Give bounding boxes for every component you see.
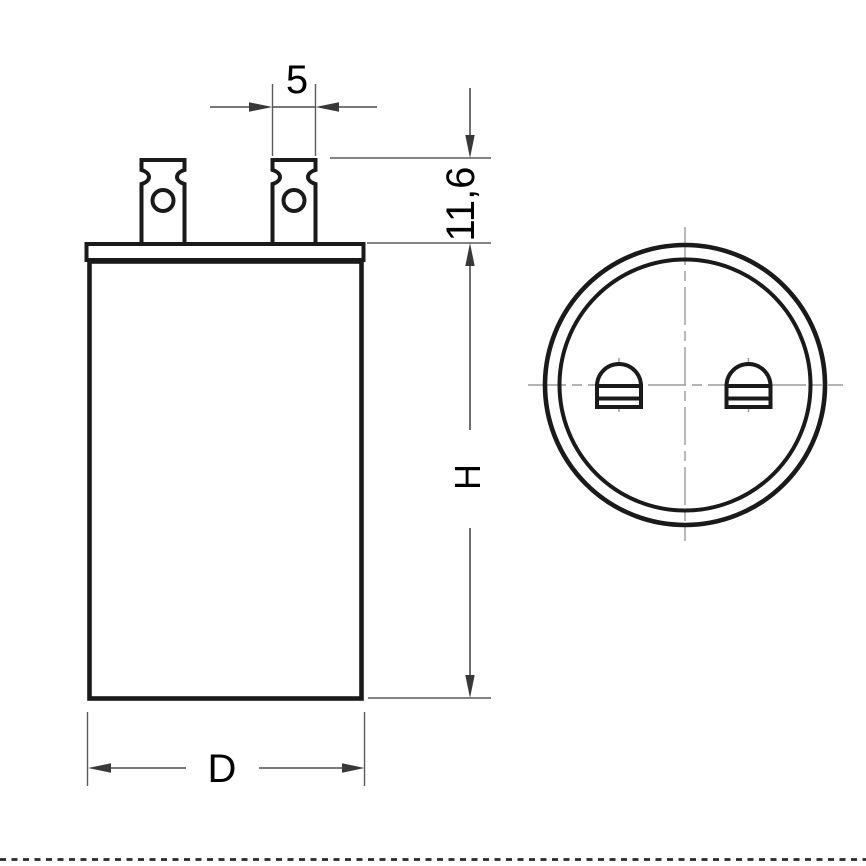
capacitor-body bbox=[90, 262, 362, 699]
top-view-left-terminal bbox=[597, 358, 641, 418]
dim-label-terminal-height: 11,6 bbox=[439, 167, 483, 242]
arrowhead bbox=[249, 102, 273, 111]
top-view-right-terminal bbox=[727, 358, 771, 418]
arrowhead bbox=[88, 763, 111, 772]
dim-label-body-height: H bbox=[447, 464, 488, 490]
front-left-terminal-hole bbox=[153, 190, 174, 211]
dim-body-diameter: D bbox=[88, 712, 365, 791]
top-view bbox=[528, 227, 843, 541]
dim-label-body-diameter: D bbox=[208, 747, 237, 791]
arrowhead bbox=[465, 243, 474, 266]
dim-body-height: H bbox=[367, 243, 491, 698]
dim-label-terminal-width: 5 bbox=[286, 58, 308, 102]
arrowhead bbox=[465, 135, 474, 158]
body-top-cap bbox=[87, 244, 364, 260]
front-view bbox=[87, 160, 364, 699]
dim-terminal-height: 11,6 bbox=[330, 88, 491, 241]
technical-drawing-page: 5 11,6 H D bbox=[0, 0, 866, 866]
arrowhead bbox=[316, 102, 340, 111]
arrowhead bbox=[342, 763, 365, 772]
capacitor-dimension-drawing: 5 11,6 H D bbox=[0, 0, 866, 866]
arrowhead bbox=[465, 675, 474, 698]
dim-terminal-width: 5 bbox=[210, 58, 377, 156]
front-right-terminal-hole bbox=[284, 190, 305, 211]
